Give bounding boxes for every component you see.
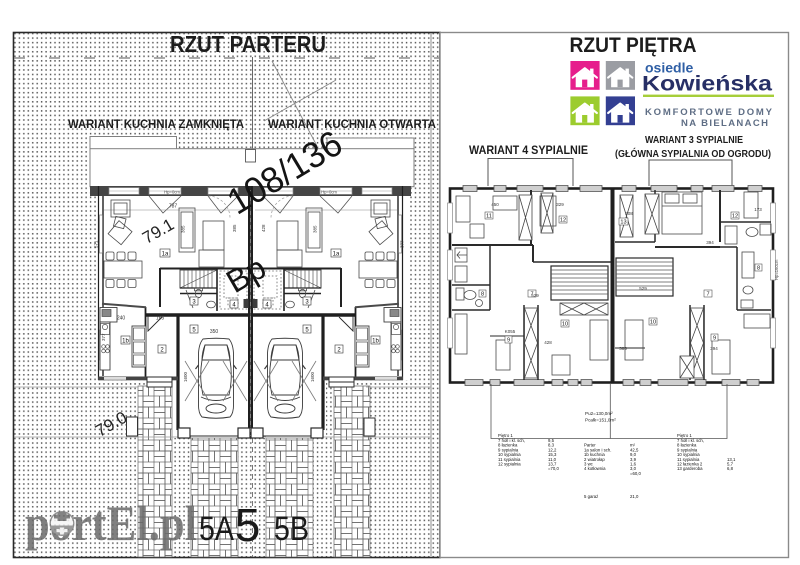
- svg-text:WARIANT 3 SYPIALNIE: WARIANT 3 SYPIALNIE: [645, 134, 743, 146]
- svg-text:13: 13: [620, 220, 626, 226]
- svg-text:173: 173: [754, 207, 762, 212]
- svg-text:Hp=0cm: Hp=0cm: [321, 190, 337, 195]
- svg-text:1b: 1b: [372, 339, 379, 345]
- svg-text:329: 329: [556, 202, 564, 207]
- svg-text:1b: 1b: [122, 339, 129, 345]
- svg-text:WARIANT KUCHNIA OTWARTA: WARIANT KUCHNIA OTWARTA: [268, 117, 436, 131]
- svg-text:5 garaż: 5 garaż: [584, 494, 598, 499]
- svg-text:529: 529: [639, 286, 647, 291]
- svg-text:529: 529: [531, 293, 539, 298]
- svg-text:9: 9: [713, 336, 716, 342]
- svg-text:12: 12: [732, 214, 738, 220]
- svg-text:8: 8: [757, 266, 760, 272]
- svg-text:428: 428: [261, 224, 266, 232]
- svg-text:450: 450: [491, 202, 499, 207]
- svg-text:787: 787: [169, 204, 178, 210]
- svg-text:RZUT PARTERU: RZUT PARTERU: [170, 31, 326, 57]
- svg-text:Pu2=130,0m²: Pu2=130,0m²: [585, 411, 613, 416]
- svg-text:4 kotłownia: 4 kotłownia: [584, 466, 606, 471]
- svg-text:21,0: 21,0: [630, 494, 639, 499]
- svg-text:NA BIELANACH: NA BIELANACH: [681, 118, 768, 129]
- svg-text:377: 377: [101, 333, 106, 341]
- svg-text:Pcałk=151,0m²: Pcałk=151,0m²: [585, 418, 616, 423]
- svg-text:WARIANT KUCHNIA ZAMKNIĘTA: WARIANT KUCHNIA ZAMKNIĘTA: [68, 117, 244, 131]
- svg-text:5B: 5B: [274, 510, 309, 548]
- svg-text:=60,0: =60,0: [630, 471, 641, 476]
- svg-text:1a: 1a: [333, 252, 340, 258]
- svg-text:K055: K055: [505, 329, 516, 334]
- svg-text:(GŁÓWNA SYPIALNIA OD OGRODU): (GŁÓWNA SYPIALNIA OD OGRODU): [615, 147, 771, 160]
- svg-text:377: 377: [400, 240, 405, 248]
- svg-text:240: 240: [117, 316, 126, 322]
- svg-text:5: 5: [235, 499, 261, 551]
- svg-text:RZUT PIĘTRA: RZUT PIĘTRA: [570, 33, 697, 57]
- svg-text:6,8: 6,8: [727, 466, 734, 471]
- svg-text:1600: 1600: [183, 371, 188, 382]
- svg-text:394: 394: [706, 240, 714, 245]
- svg-text:WARIANT 4 SYPIALNIE: WARIANT 4 SYPIALNIE: [469, 145, 588, 157]
- svg-text:385: 385: [619, 346, 627, 351]
- svg-text:KOMFORTOWE DOMY: KOMFORTOWE DOMY: [645, 107, 773, 118]
- svg-text:=70,0: =70,0: [548, 466, 559, 471]
- svg-text:12 sypialnia: 12 sypialnia: [498, 462, 521, 467]
- svg-text:13 garderoba: 13 garderoba: [677, 466, 703, 471]
- svg-text:1a: 1a: [162, 252, 169, 258]
- svg-text:208: 208: [625, 211, 633, 216]
- svg-text:Hp=0cm: Hp=0cm: [164, 190, 180, 195]
- svg-text:394: 394: [710, 346, 718, 351]
- svg-text:10: 10: [650, 320, 656, 326]
- svg-text:11: 11: [486, 214, 492, 220]
- svg-text:10: 10: [562, 322, 568, 328]
- svg-text:1600: 1600: [310, 371, 315, 382]
- svg-text:8: 8: [481, 292, 484, 298]
- svg-text:385: 385: [181, 225, 186, 233]
- svg-text:428: 428: [544, 340, 552, 345]
- svg-text:350: 350: [210, 329, 219, 335]
- svg-text:7: 7: [706, 292, 709, 298]
- svg-text:5A: 5A: [199, 510, 234, 548]
- svg-text:12: 12: [560, 218, 566, 224]
- svg-text:Kowieńska: Kowieńska: [642, 73, 772, 96]
- svg-text:Hp=160cm: Hp=160cm: [774, 259, 779, 280]
- svg-text:385: 385: [313, 225, 318, 233]
- svg-text:385: 385: [232, 224, 237, 232]
- svg-text:571: 571: [94, 240, 99, 248]
- svg-text:165: 165: [156, 316, 165, 322]
- svg-text:9: 9: [507, 338, 510, 344]
